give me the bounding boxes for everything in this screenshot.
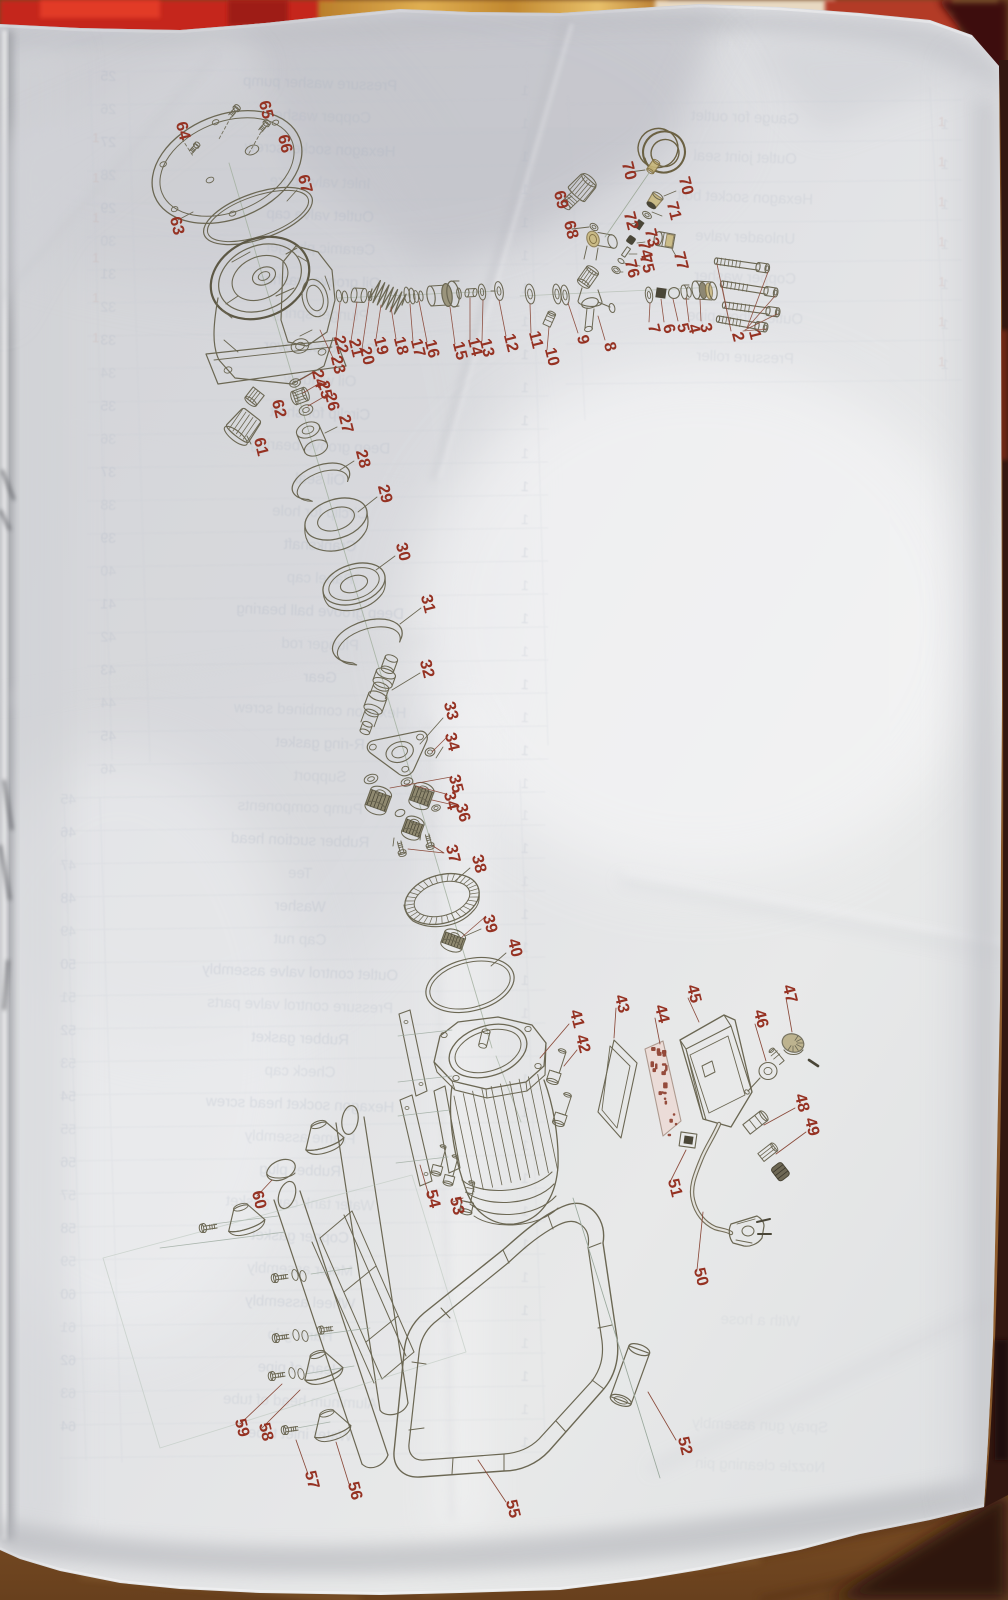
svg-text:47: 47 [60, 857, 76, 874]
svg-text:61: 61 [60, 1319, 76, 1336]
svg-text:1: 1 [521, 972, 530, 988]
svg-text:1: 1 [521, 676, 530, 692]
svg-text:1: 1 [938, 274, 946, 289]
svg-text:51: 51 [60, 989, 76, 1006]
svg-text:1: 1 [92, 330, 100, 345]
svg-text:Rubber gasket: Rubber gasket [250, 1028, 349, 1048]
svg-text:1: 1 [92, 250, 100, 265]
svg-text:Washer: Washer [274, 897, 326, 916]
svg-text:1: 1 [521, 1005, 530, 1021]
svg-text:1: 1 [938, 234, 946, 249]
svg-text:Tee: Tee [288, 865, 313, 883]
svg-text:1: 1 [521, 115, 530, 131]
svg-text:Crankshaft: Crankshaft [283, 536, 357, 556]
svg-text:64: 64 [60, 1418, 76, 1435]
svg-text:1: 1 [521, 1236, 530, 1252]
svg-text:1: 1 [521, 511, 530, 527]
svg-text:1: 1 [521, 709, 530, 725]
svg-text:1: 1 [92, 210, 100, 225]
svg-text:1: 1 [521, 181, 530, 197]
svg-text:Check cap: Check cap [264, 1062, 335, 1081]
svg-text:34: 34 [100, 364, 116, 381]
svg-text:1: 1 [521, 1203, 530, 1219]
svg-text:1: 1 [521, 1368, 530, 1384]
svg-text:1: 1 [521, 379, 530, 395]
svg-text:35: 35 [100, 397, 116, 414]
svg-text:25: 25 [100, 67, 116, 84]
svg-text:1: 1 [521, 775, 530, 791]
svg-text:40: 40 [100, 562, 116, 579]
svg-text:1: 1 [521, 1170, 530, 1186]
svg-text:31: 31 [100, 265, 116, 282]
svg-text:1: 1 [521, 148, 530, 164]
svg-text:1: 1 [521, 1071, 530, 1087]
svg-text:60: 60 [60, 1286, 76, 1303]
svg-text:1: 1 [521, 1335, 530, 1351]
svg-text:1: 1 [92, 290, 100, 305]
svg-text:1: 1 [521, 577, 530, 593]
svg-text:1: 1 [521, 412, 530, 428]
svg-text:38: 38 [100, 496, 116, 513]
svg-text:29: 29 [100, 199, 116, 216]
svg-text:Support: Support [293, 767, 347, 786]
svg-text:Cap nut: Cap nut [273, 930, 327, 949]
svg-text:Gear: Gear [303, 668, 337, 686]
svg-text:48: 48 [60, 890, 76, 907]
svg-text:1: 1 [521, 1269, 530, 1285]
svg-text:46: 46 [60, 824, 76, 841]
svg-text:39: 39 [100, 529, 116, 546]
svg-text:1: 1 [92, 130, 100, 145]
svg-text:Unloader valve: Unloader valve [695, 227, 796, 247]
svg-text:1: 1 [938, 194, 946, 209]
svg-text:1: 1 [521, 247, 530, 263]
svg-text:49: 49 [60, 923, 76, 940]
svg-text:1: 1 [521, 544, 530, 560]
svg-text:53: 53 [60, 1055, 76, 1072]
svg-text:36: 36 [100, 430, 116, 447]
svg-text:Copper washer: Copper washer [269, 106, 371, 127]
svg-text:With a hose: With a hose [720, 1311, 800, 1331]
svg-text:1: 1 [521, 1302, 530, 1318]
svg-text:1: 1 [521, 214, 530, 230]
svg-text:43: 43 [100, 661, 116, 678]
svg-text:56: 56 [60, 1154, 76, 1171]
svg-text:52: 52 [60, 1022, 76, 1039]
svg-text:54: 54 [60, 1088, 76, 1105]
svg-text:26: 26 [100, 100, 116, 117]
svg-text:57: 57 [60, 1187, 76, 1204]
svg-text:1: 1 [521, 445, 530, 461]
svg-text:55: 55 [60, 1121, 76, 1138]
svg-text:1: 1 [521, 643, 530, 659]
svg-text:59: 59 [60, 1253, 76, 1270]
svg-text:Pressure roller: Pressure roller [696, 347, 794, 367]
svg-text:30: 30 [100, 232, 116, 249]
svg-text:46: 46 [100, 760, 116, 777]
svg-text:1: 1 [938, 154, 946, 169]
svg-text:62: 62 [60, 1352, 76, 1369]
svg-text:28: 28 [100, 166, 116, 183]
svg-text:R-ring gasket: R-ring gasket [274, 733, 365, 753]
svg-text:1: 1 [521, 742, 530, 758]
svg-text:33: 33 [100, 331, 116, 348]
svg-text:32: 32 [100, 298, 116, 315]
svg-text:1: 1 [938, 354, 946, 369]
svg-text:63: 63 [60, 1385, 76, 1402]
svg-text:1: 1 [521, 478, 530, 494]
svg-text:50: 50 [60, 956, 76, 973]
svg-text:1: 1 [938, 314, 946, 329]
svg-text:1: 1 [521, 82, 530, 98]
svg-text:Copper gasket: Copper gasket [250, 1226, 349, 1246]
svg-text:1: 1 [521, 906, 530, 922]
svg-text:1: 1 [521, 807, 530, 823]
svg-text:41: 41 [100, 595, 116, 612]
svg-text:44: 44 [100, 694, 116, 711]
svg-text:45: 45 [60, 791, 76, 808]
svg-text:1: 1 [521, 840, 530, 856]
svg-text:42: 42 [100, 628, 116, 645]
svg-text:1: 1 [521, 1401, 530, 1417]
svg-text:1: 1 [521, 873, 530, 889]
svg-text:1: 1 [92, 170, 100, 185]
svg-text:45: 45 [100, 727, 116, 744]
svg-text:37: 37 [100, 463, 116, 480]
svg-text:1: 1 [938, 114, 946, 129]
svg-text:58: 58 [60, 1220, 76, 1237]
svg-text:1: 1 [521, 610, 530, 626]
svg-text:27: 27 [100, 133, 116, 150]
svg-text:Outlet joint seal: Outlet joint seal [693, 147, 797, 168]
svg-text:1: 1 [521, 313, 530, 329]
